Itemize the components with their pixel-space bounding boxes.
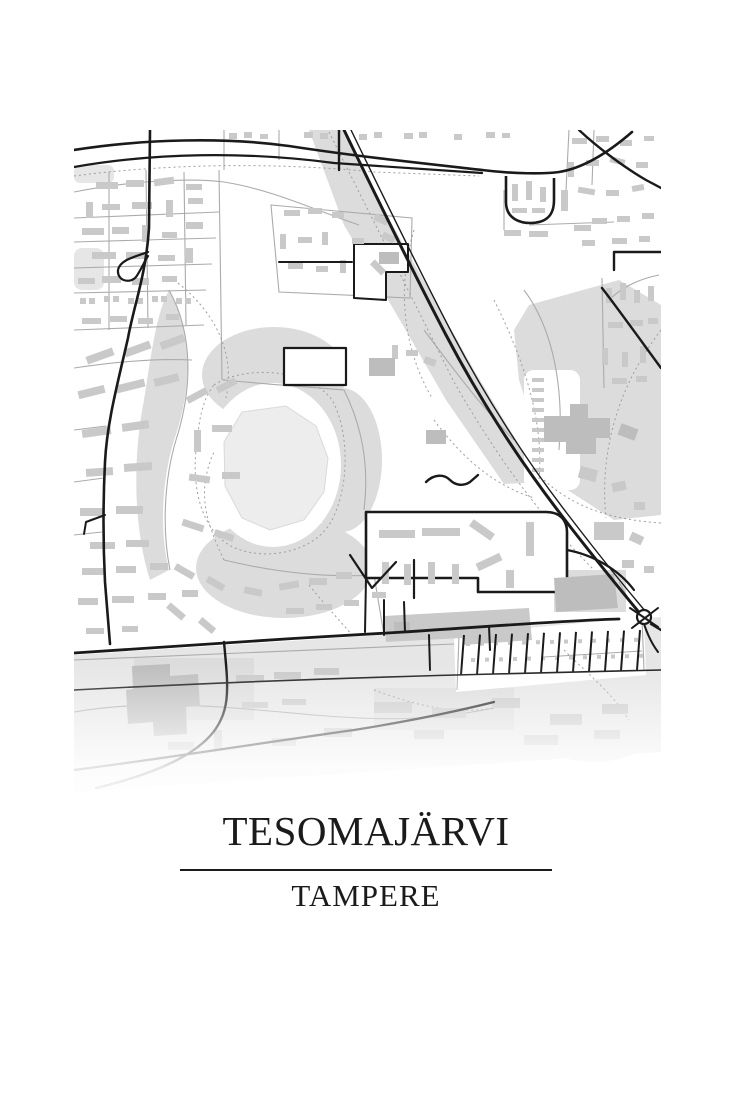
building [532,428,544,432]
building [622,560,634,568]
building [222,472,240,479]
east-stub-road [614,252,661,270]
building [583,655,587,659]
industrial-plot [366,512,567,592]
building [527,657,531,661]
building [166,200,173,217]
building [102,204,120,210]
building [85,347,114,364]
building [414,730,444,739]
building [186,248,193,263]
building [550,640,554,644]
building [611,655,615,659]
building [634,638,638,642]
building [406,350,418,356]
building [582,240,595,246]
building [304,132,313,138]
building [639,236,650,242]
building [182,590,198,597]
building [630,320,643,326]
building [126,540,149,547]
building [532,208,545,213]
building [608,322,623,328]
building [286,608,304,614]
building [574,225,591,231]
poster-title: TESOMAJÄRVI [0,811,732,852]
building [499,657,503,661]
building [185,298,191,304]
building [634,290,640,303]
building [594,522,624,540]
building [572,138,587,144]
building [282,699,306,705]
lake-outlet-road [426,475,478,485]
building [592,639,596,643]
building [636,376,647,382]
building [592,218,607,224]
building [636,162,648,168]
building [369,358,395,376]
building [92,252,116,259]
building [569,656,573,660]
building [352,238,364,244]
building [596,136,609,142]
building [166,314,179,320]
building [78,598,98,605]
building [116,566,136,573]
building [419,132,427,138]
building [104,296,110,302]
building [532,438,544,442]
building [404,564,411,585]
large-building [554,574,618,612]
building [86,467,113,477]
building [332,212,344,218]
west-branch-road [84,515,105,534]
building [154,177,175,187]
map-svg [74,130,661,820]
building [532,378,544,382]
building [82,318,101,324]
building [512,184,518,201]
building [526,522,534,556]
building [625,654,629,658]
building [492,698,520,708]
building [578,187,596,196]
building [532,408,544,412]
building [188,198,203,204]
building [229,133,237,139]
building [344,600,359,606]
school-plot [284,348,346,385]
building [648,286,654,301]
building [428,562,435,584]
building [82,228,104,235]
map-canvas [74,130,661,820]
building [540,187,546,202]
building [158,255,175,261]
building [86,202,93,218]
building [639,654,643,658]
building [198,617,216,634]
building [648,318,658,324]
building [308,208,322,214]
building [186,387,209,404]
main-road-top [74,140,482,170]
building [168,742,194,750]
building [284,210,300,216]
building [379,530,415,538]
building [359,134,367,140]
building [320,133,328,139]
building [642,213,654,219]
building [522,641,526,645]
building [471,658,475,662]
building [632,184,645,192]
building [524,735,558,745]
building [336,572,352,579]
building [480,642,484,646]
building [102,276,121,283]
building [174,563,196,580]
building [644,566,654,573]
building [532,418,544,422]
building [532,388,544,392]
building [578,639,582,643]
building [526,181,532,200]
building [512,208,527,213]
building [612,238,627,244]
building [86,628,104,634]
building [274,672,301,679]
building [322,232,328,245]
building [629,532,645,546]
lake-tesomajarvi [205,383,341,547]
building [532,448,544,452]
building [122,626,138,632]
building [112,596,134,603]
building [640,346,646,363]
building [309,578,327,585]
building [138,318,153,324]
building [82,568,104,575]
building [602,348,608,365]
poster-canvas: TESOMAJÄRVI TAMPERE [0,0,732,1094]
building [529,231,548,237]
building [316,604,332,610]
building [115,379,145,394]
building [110,316,127,322]
building [298,237,312,243]
building [212,425,232,432]
building [314,668,339,675]
main-road-northeast [482,132,632,173]
building [96,182,118,189]
building [116,506,143,514]
building [128,298,134,304]
building [150,563,168,570]
building [113,296,119,302]
building [454,134,462,140]
building [77,385,105,399]
building [550,714,582,725]
building [126,180,144,187]
building [176,298,182,304]
building [485,658,489,662]
building [148,593,166,600]
building [506,570,514,588]
building [316,266,328,272]
building [186,222,203,229]
building [644,136,654,141]
building [426,430,446,444]
building [617,216,630,222]
building [561,190,568,211]
building [89,298,95,304]
building [466,642,470,646]
building [597,655,601,659]
building [379,252,399,264]
building [536,640,540,644]
building [181,519,204,532]
building [620,283,626,300]
building [166,602,186,620]
building [161,296,167,302]
building [80,508,105,516]
building [532,458,544,462]
building [162,232,177,238]
caption-divider [180,869,552,871]
building [186,184,202,190]
building [242,702,268,708]
building [502,133,510,138]
building [372,592,386,598]
building [288,263,303,269]
building [564,640,568,644]
building [504,230,521,236]
building [513,657,517,661]
building [532,398,544,402]
building [214,730,222,750]
building [80,298,86,304]
building [152,296,158,302]
building [244,132,252,138]
building [452,564,459,584]
building [612,378,627,384]
building [280,234,286,249]
building [78,278,95,284]
building [606,190,619,196]
building [112,227,129,234]
building [594,730,620,739]
building [566,430,588,450]
building [486,132,495,138]
building [392,345,398,359]
building [634,502,645,510]
building [622,352,628,367]
building [374,702,412,713]
building [162,276,177,282]
building [602,704,628,714]
poster-subtitle: TAMPERE [0,880,732,911]
building [374,132,382,138]
building [260,134,268,139]
building [404,133,413,139]
building [422,528,460,536]
building [194,430,201,452]
